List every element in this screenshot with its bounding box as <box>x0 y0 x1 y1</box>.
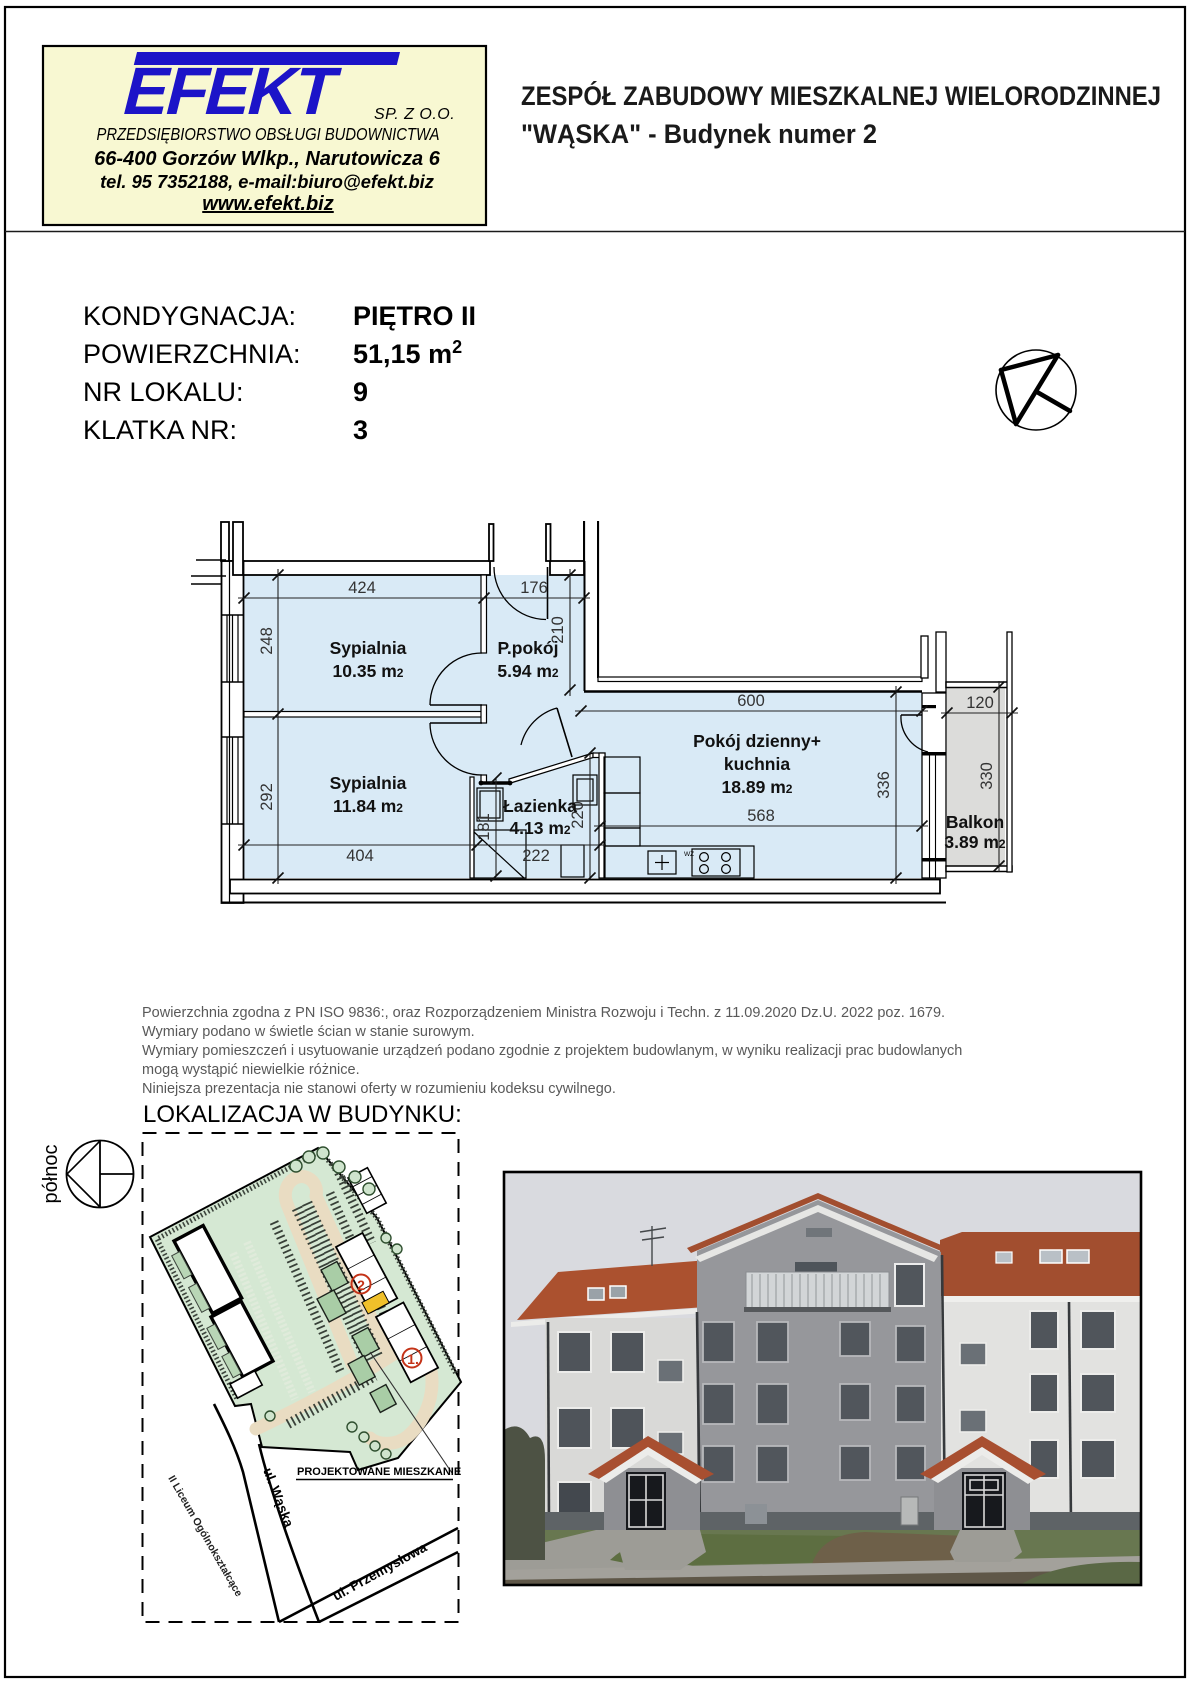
svg-text:www.efekt.biz: www.efekt.biz <box>202 193 334 215</box>
svg-text:PRZEDSIĘBIORSTWO OBSŁUGI BUDOW: PRZEDSIĘBIORSTWO OBSŁUGI BUDOWNICTWA <box>97 124 440 144</box>
svg-text:9: 9 <box>353 377 368 407</box>
svg-text:Wymiary podano w świetle ścian: Wymiary podano w świetle ścian w stanie … <box>142 1024 475 1040</box>
svg-text:66-400 Gorzów Wlkp., Narutowic: 66-400 Gorzów Wlkp., Narutowicza 6 <box>94 148 441 170</box>
svg-text:POWIERZCHNIA:: POWIERZCHNIA: <box>83 339 301 369</box>
svg-text:KLATKA NR:: KLATKA NR: <box>83 415 237 445</box>
svg-text:11.84 m2: 11.84 m2 <box>333 796 403 816</box>
svg-text:ZESPÓŁ ZABUDOWY MIESZKALNEJ WI: ZESPÓŁ ZABUDOWY MIESZKALNEJ WIELORODZINN… <box>521 80 1161 111</box>
svg-text:Balkon: Balkon <box>946 812 1004 832</box>
svg-text:WZ: WZ <box>684 851 694 858</box>
svg-text:222: 222 <box>522 847 550 865</box>
svg-text:EFEKT: EFEKT <box>116 54 346 129</box>
svg-text:Powierzchnia zgodna z PN ISO 9: Powierzchnia zgodna z PN ISO 9836:, oraz… <box>142 1005 945 1021</box>
svg-text:kuchnia: kuchnia <box>724 754 790 774</box>
svg-text:PIĘTRO II: PIĘTRO II <box>353 301 476 331</box>
svg-text:PROJEKTOWANE MIESZKANIE: PROJEKTOWANE MIESZKANIE <box>297 1466 461 1478</box>
svg-text:51,15 m2: 51,15 m2 <box>353 337 462 369</box>
svg-text:424: 424 <box>348 579 376 597</box>
svg-text:248: 248 <box>258 627 276 655</box>
svg-text:10.35 m2: 10.35 m2 <box>333 661 404 681</box>
svg-text:176: 176 <box>520 579 548 597</box>
svg-text:Sypialnia: Sypialnia <box>330 638 407 658</box>
svg-text:KONDYGNACJA:: KONDYGNACJA: <box>83 301 296 331</box>
svg-text:3: 3 <box>353 415 368 445</box>
svg-text:mogą wystąpić niewielkie różni: mogą wystąpić niewielkie różnice. <box>142 1062 360 1078</box>
svg-text:181: 181 <box>475 813 493 841</box>
svg-text:5.94 m2: 5.94 m2 <box>497 661 558 681</box>
svg-text:Niniejsza prezentacja nie stan: Niniejsza prezentacja nie stanowi oferty… <box>142 1081 616 1097</box>
svg-text:4.13 m2: 4.13 m2 <box>509 818 570 838</box>
svg-text:SP. Z O.O.: SP. Z O.O. <box>374 106 455 123</box>
svg-text:3.89 m2: 3.89 m2 <box>944 832 1005 852</box>
svg-text:tel. 95 7352188, e-mail:biuro@: tel. 95 7352188, e-mail:biuro@efekt.biz <box>100 171 435 192</box>
svg-text:336: 336 <box>875 771 893 799</box>
svg-text:292: 292 <box>258 783 276 811</box>
svg-text:404: 404 <box>346 847 374 865</box>
svg-text:Pokój dzienny+: Pokój dzienny+ <box>693 731 821 751</box>
svg-text:Sypialnia: Sypialnia <box>330 773 407 793</box>
svg-text:ul. Wąska: ul. Wąska <box>260 1466 296 1530</box>
svg-text:Wymiary pomieszczeń i usytuowa: Wymiary pomieszczeń i usytuowanie urządz… <box>142 1043 962 1059</box>
svg-text:2: 2 <box>357 1277 365 1293</box>
svg-text:II Liceum Ogólnokształcące: II Liceum Ogólnokształcące <box>165 1474 244 1599</box>
svg-text:330: 330 <box>978 762 996 790</box>
svg-text:1.: 1. <box>407 1351 419 1367</box>
svg-text:ul. Przemysłowa: ul. Przemysłowa <box>330 1539 430 1603</box>
svg-text:NR LOKALU:: NR LOKALU: <box>83 377 244 407</box>
svg-text:18.89 m2: 18.89 m2 <box>722 777 793 797</box>
svg-text:północ: północ <box>40 1145 62 1204</box>
svg-text:"WĄSKA" - Budynek numer 2: "WĄSKA" - Budynek numer 2 <box>521 119 877 149</box>
svg-text:600: 600 <box>737 692 765 710</box>
svg-text:Łazienka: Łazienka <box>503 796 577 816</box>
svg-text:120: 120 <box>966 694 994 712</box>
svg-text:LOKALIZACJA W BUDYNKU:: LOKALIZACJA W BUDYNKU: <box>143 1101 462 1128</box>
svg-text:P.pokój: P.pokój <box>498 638 559 658</box>
svg-text:568: 568 <box>747 807 775 825</box>
